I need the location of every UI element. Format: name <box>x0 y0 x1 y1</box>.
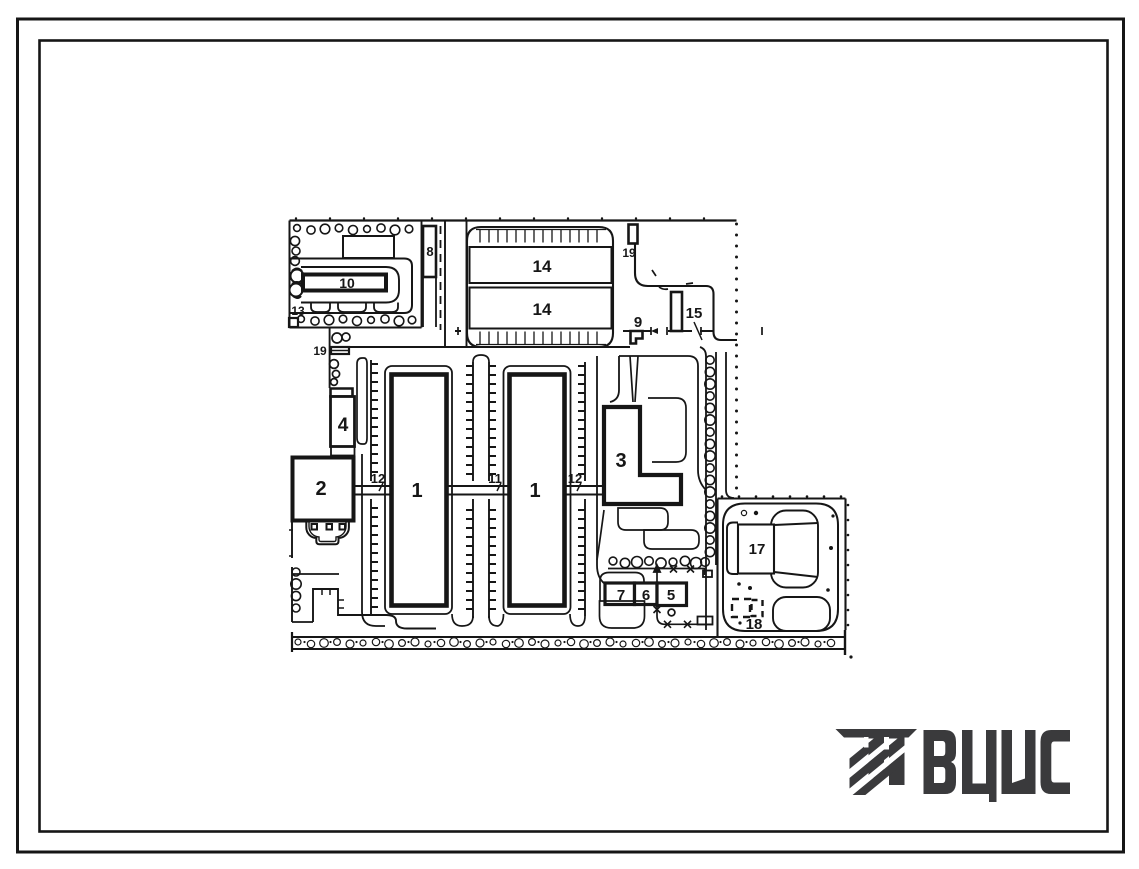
svg-text:19: 19 <box>313 344 327 358</box>
svg-text:1: 1 <box>529 480 540 502</box>
svg-text:5: 5 <box>667 587 675 604</box>
svg-text:3: 3 <box>615 450 626 472</box>
svg-text:13: 13 <box>291 304 305 318</box>
svg-text:9: 9 <box>634 314 642 331</box>
svg-text:18: 18 <box>746 616 763 633</box>
svg-text:10: 10 <box>339 275 355 291</box>
svg-text:2: 2 <box>315 478 326 500</box>
svg-text:1: 1 <box>411 480 422 502</box>
svg-text:14: 14 <box>533 257 552 276</box>
svg-text:15: 15 <box>686 305 703 322</box>
svg-text:19: 19 <box>622 246 636 260</box>
svg-text:4: 4 <box>338 415 349 436</box>
svg-text:14: 14 <box>533 300 552 319</box>
svg-text:8: 8 <box>426 244 433 259</box>
svg-text:17: 17 <box>749 541 766 558</box>
